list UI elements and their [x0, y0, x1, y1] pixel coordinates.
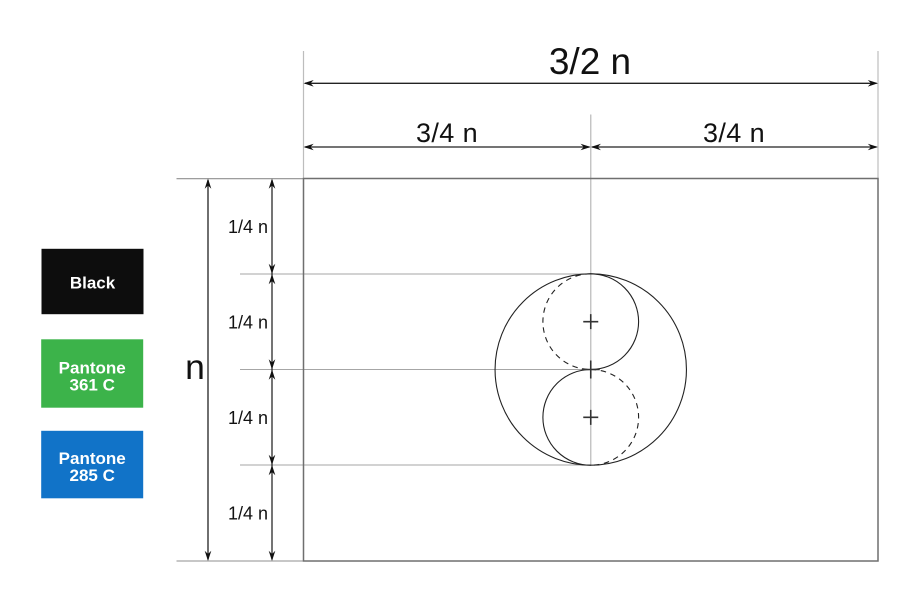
svg-text:Black: Black: [70, 274, 116, 293]
svg-text:1/4 n: 1/4 n: [228, 217, 268, 237]
svg-text:285 C: 285 C: [70, 466, 115, 485]
svg-text:1/4 n: 1/4 n: [228, 408, 268, 428]
svg-text:1/4 n: 1/4 n: [228, 313, 268, 333]
svg-text:3/4 n: 3/4 n: [703, 118, 765, 148]
svg-text:n: n: [185, 347, 205, 387]
svg-text:3/2 n: 3/2 n: [549, 41, 631, 82]
svg-text:1/4 n: 1/4 n: [228, 504, 268, 524]
svg-text:361 C: 361 C: [70, 376, 115, 395]
svg-text:3/4 n: 3/4 n: [416, 118, 478, 148]
